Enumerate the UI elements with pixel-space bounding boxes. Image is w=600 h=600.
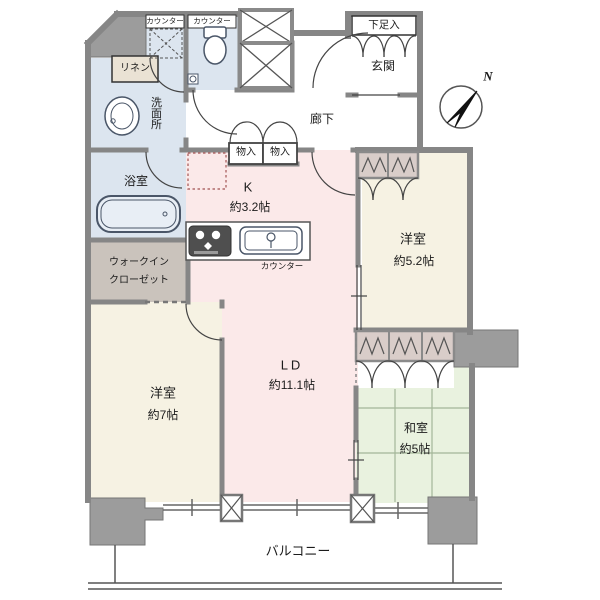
north-compass-icon [440, 86, 482, 128]
kitchen-name: K [244, 181, 253, 194]
north-label: N [483, 70, 492, 83]
bedroom-right-size: 約5.2帖 [394, 255, 435, 267]
bedroom-left-size: 約7帖 [148, 409, 179, 421]
closet-band-japanese-room [356, 331, 454, 361]
storage-label-left: 物入 [236, 148, 256, 158]
wic-label-line1: ウォークイン [109, 258, 169, 268]
entrance-label: 玄関 [371, 60, 395, 72]
bedroom-left-name: 洋室 [150, 387, 176, 400]
japanese-room-name: 和室 [404, 422, 428, 434]
stove-icon [189, 226, 231, 256]
storage-label-right: 物入 [270, 148, 290, 158]
pillar-bottom-right [428, 497, 477, 544]
pillar-right-mid [454, 330, 518, 367]
bedroom-left-area [90, 302, 222, 502]
balcony-label: バルコニー [266, 545, 331, 558]
kitchen-size: 約3.2帖 [230, 201, 271, 213]
floor-plan-page: カウンター カウンター リネン 洗面所 浴室 ウォークイン クローゼット 洋室 … [0, 0, 600, 600]
wic-label-line2: クローゼット [109, 276, 169, 286]
shaft-x-icon [240, 10, 292, 88]
linen-label: リネン [120, 64, 150, 74]
kitchen-sink-icon [240, 227, 302, 254]
corridor-area [186, 90, 420, 150]
japanese-room-size: 約5帖 [400, 443, 431, 455]
counter-label-toilet: カウンター [193, 17, 231, 25]
pillar-bottom-left [90, 498, 163, 545]
counter-label-washroom: カウンター [146, 17, 184, 25]
living-dining-name: LD [281, 359, 304, 372]
washroom-label: 洗面所 [150, 97, 161, 130]
bathroom-label: 浴室 [124, 175, 148, 187]
walk-in-closet-area [90, 240, 188, 302]
bedroom-right-name: 洋室 [400, 233, 426, 246]
living-dining-size: 約11.1帖 [269, 379, 315, 391]
bathtub-icon [97, 196, 180, 232]
floor-plan-svg [0, 0, 600, 600]
kitchen-counter [186, 222, 310, 260]
washbasin-icon [105, 97, 139, 135]
shoe-cabinet-label: 下足入 [368, 20, 400, 31]
counter-label-kitchen: カウンター [261, 262, 304, 271]
corridor-label: 廊下 [310, 113, 334, 125]
